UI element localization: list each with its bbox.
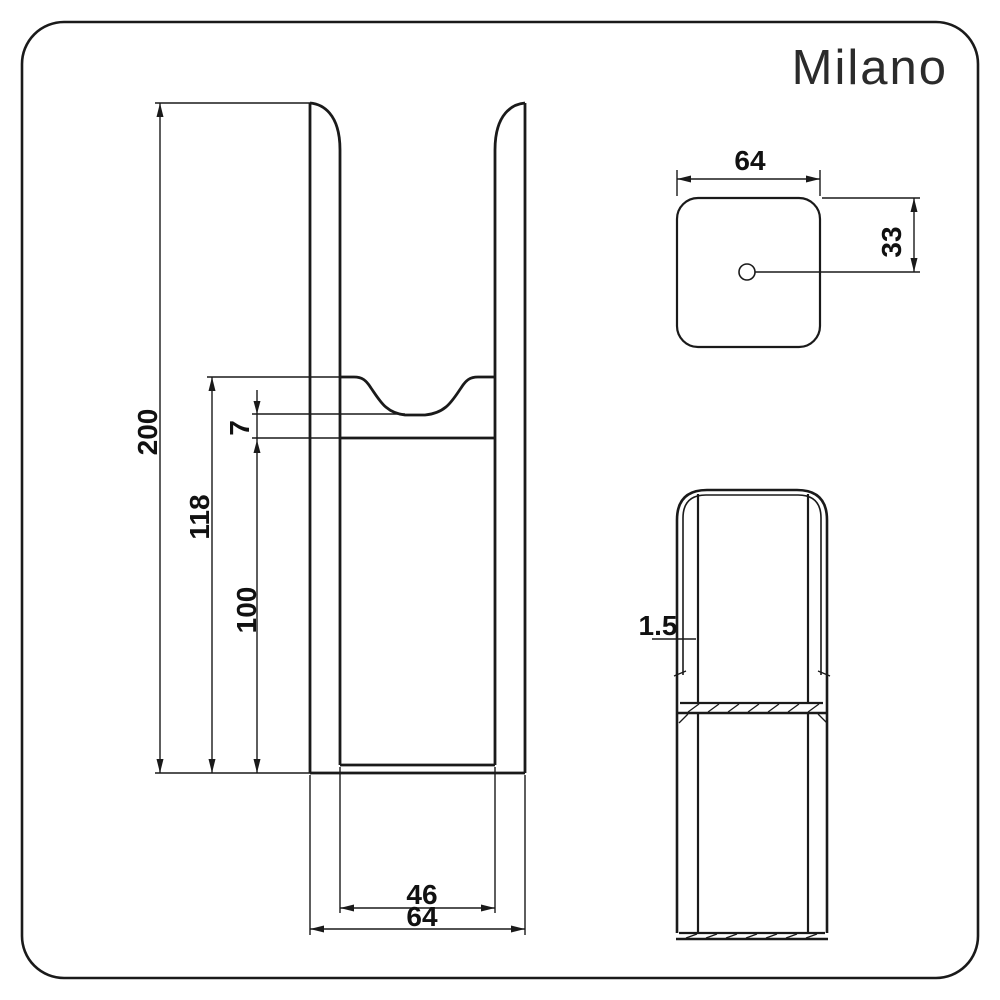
brand-logo: Milano (792, 41, 948, 95)
front-view-outline (310, 103, 525, 773)
dim-upper-section-height: 118 (184, 494, 215, 539)
side-view: 1.5 (639, 490, 830, 939)
front-view: 200 118 100 7 46 64 (132, 103, 525, 935)
drawing-border (22, 22, 978, 978)
dim-edge-to-centre: 33 (876, 226, 907, 257)
pipe-saddle-curve (340, 377, 495, 415)
technical-drawing: Milano (0, 0, 1000, 1000)
top-view: 64 33 (677, 145, 920, 347)
side-view-base-hatch (676, 933, 828, 939)
side-view-upper-section (674, 490, 830, 713)
side-view-joint-hatch (677, 703, 827, 723)
dim-total-height: 200 (132, 409, 163, 456)
pipe-hole (739, 264, 755, 280)
side-view-lower-section (677, 713, 827, 933)
dim-top-width: 64 (734, 145, 766, 176)
dim-lower-section-height: 100 (231, 587, 262, 634)
dim-wall-thickness: 1.5 (639, 610, 678, 641)
dim-outer-width: 64 (406, 901, 438, 932)
dim-saddle-depth: 7 (224, 420, 255, 436)
technical-drawing-page: Milano (0, 0, 1000, 1000)
